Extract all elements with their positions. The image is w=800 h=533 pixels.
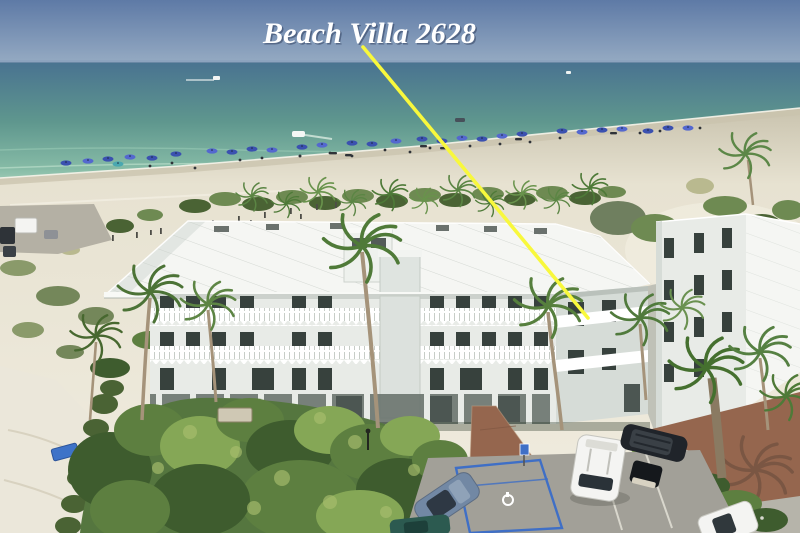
photo: Beach Villa 2628 Beach Villa 2628 (0, 0, 800, 533)
unit-label: Beach Villa 2628 (262, 17, 476, 50)
white-minivan (569, 434, 626, 503)
chimney (380, 252, 420, 298)
monument-sign (218, 408, 252, 422)
handicap-sign (520, 444, 529, 455)
beach-van (15, 218, 37, 233)
